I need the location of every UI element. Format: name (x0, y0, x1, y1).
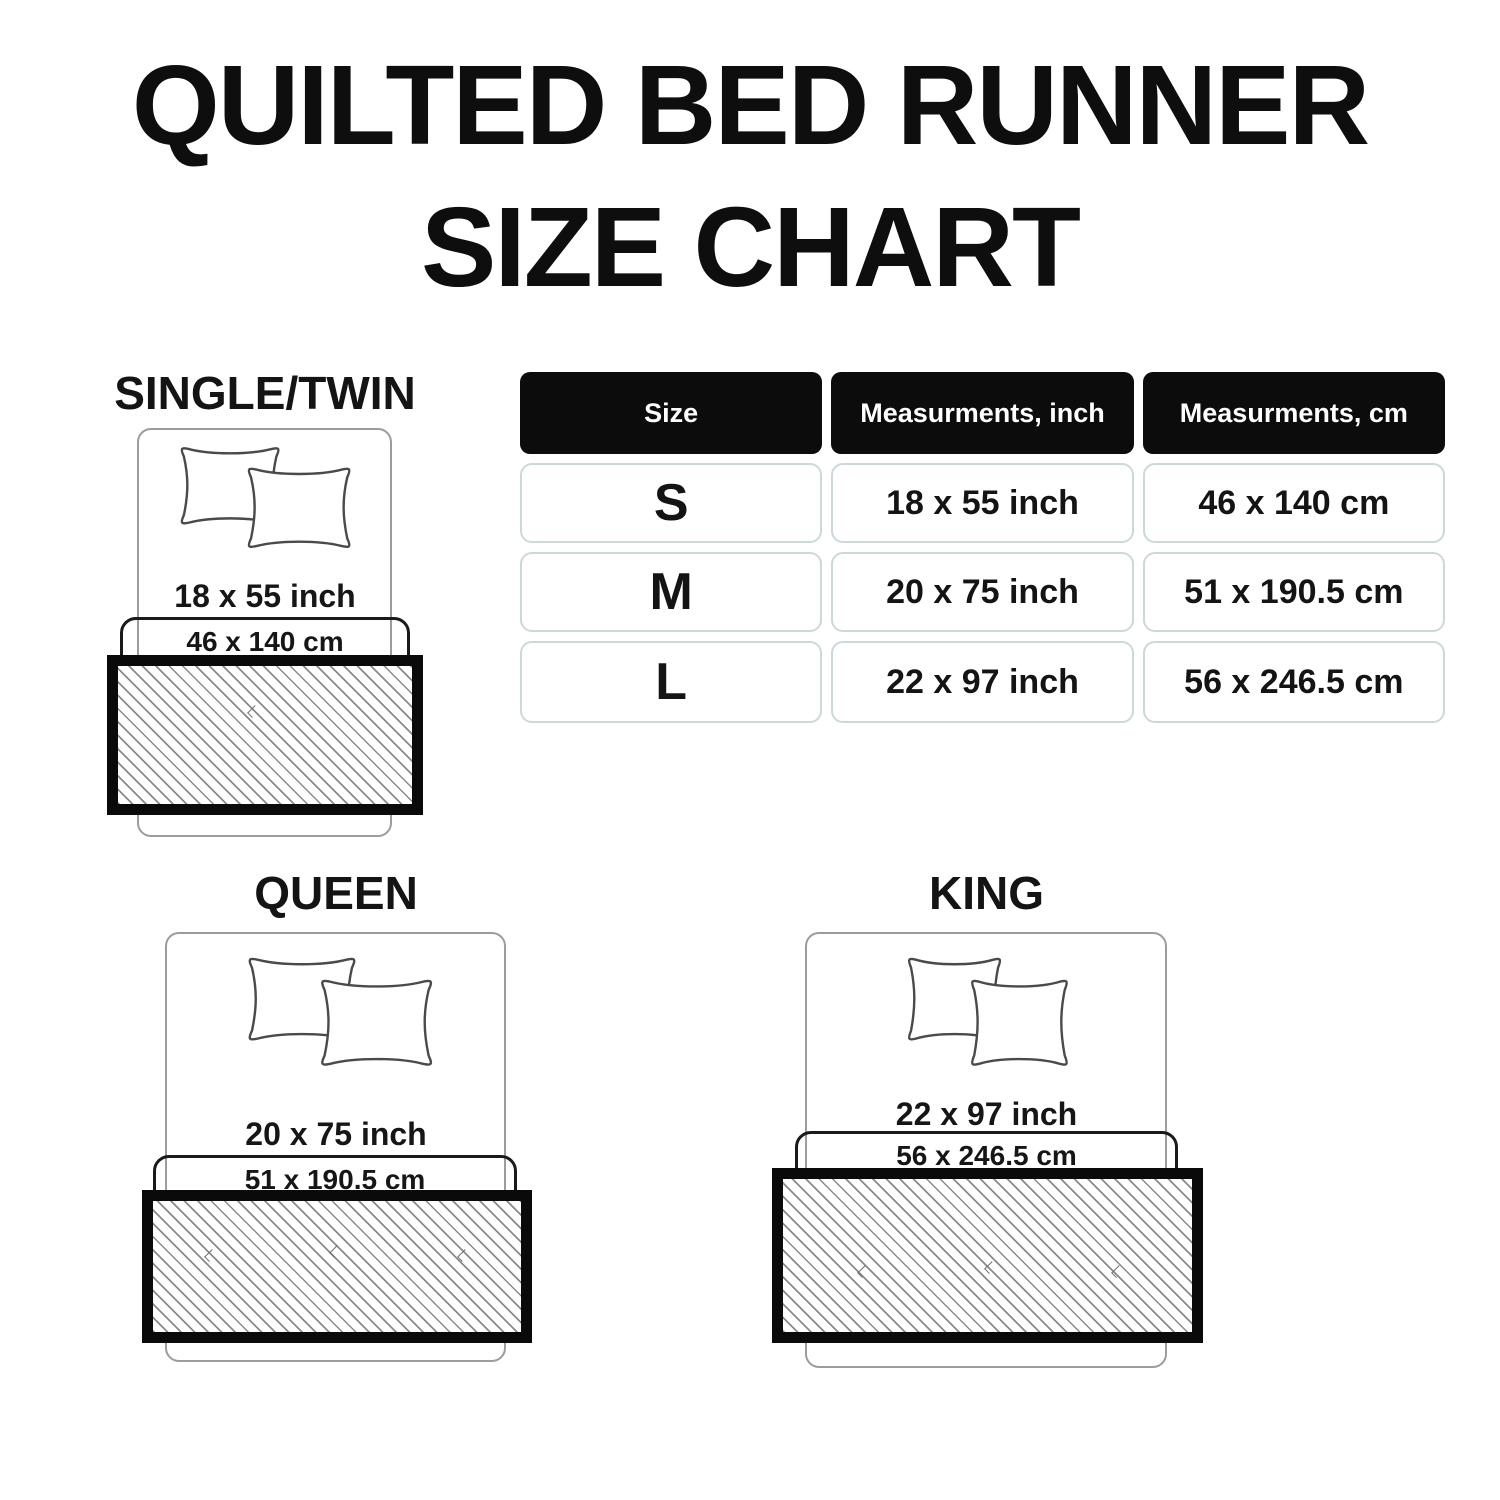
table-cell-inch-m: 20 x 75 inch (831, 552, 1133, 632)
table-header-cm: Measurments, cm (1143, 372, 1445, 454)
pillows-icon-king (898, 950, 1072, 1068)
pillows-icon-queen (237, 950, 437, 1068)
table-cell-inch-s: 18 x 55 inch (831, 463, 1133, 543)
runner-swatch-single-twin (107, 655, 423, 815)
table-cell-cm-m: 51 x 190.5 cm (1143, 552, 1445, 632)
runner-size-inch-single-twin: 18 x 55 inch (137, 578, 393, 615)
runner-size-inch-queen: 20 x 75 inch (165, 1116, 507, 1153)
table-cell-size-m: M (520, 552, 822, 632)
diagram-title-single-twin: SINGLE/TWIN (95, 366, 435, 420)
diagram-title-queen: QUEEN (165, 866, 507, 920)
page-title-line2: SIZE CHART (0, 176, 1500, 318)
runner-size-cm-single-twin: 46 x 140 cm (123, 620, 407, 658)
page-title-line1: QUILTED BED RUNNER (0, 34, 1500, 176)
page-title: QUILTED BED RUNNER SIZE CHART (0, 34, 1500, 319)
table-cell-inch-l: 22 x 97 inch (831, 641, 1133, 723)
size-table: Size Measurments, inch Measurments, cm S… (520, 372, 1445, 723)
pillows-icon-single-twin (170, 440, 355, 550)
table-header-inch: Measurments, inch (831, 372, 1133, 454)
runner-size-inch-king: 22 x 97 inch (805, 1096, 1168, 1133)
runner-size-cm-king: 56 x 246.5 cm (798, 1134, 1175, 1172)
table-cell-size-l: L (520, 641, 822, 723)
diagram-title-king: KING (805, 866, 1168, 920)
table-cell-cm-s: 46 x 140 cm (1143, 463, 1445, 543)
table-header-size: Size (520, 372, 822, 454)
table-cell-cm-l: 56 x 246.5 cm (1143, 641, 1445, 723)
size-chart-infographic: QUILTED BED RUNNER SIZE CHART SINGLE/TWI… (0, 0, 1500, 1500)
table-cell-size-s: S (520, 463, 822, 543)
runner-swatch-king (772, 1168, 1203, 1343)
runner-swatch-queen (142, 1190, 532, 1343)
